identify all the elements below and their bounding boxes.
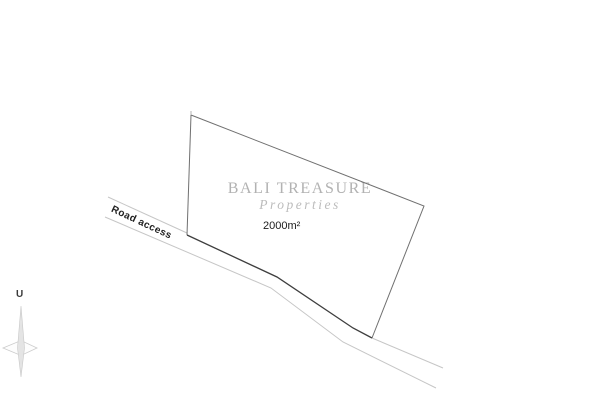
- parcel-left-edge: [187, 115, 191, 235]
- site-plan-canvas: BALI TREASURE Properties 2000m² Road acc…: [0, 0, 600, 400]
- plan-drawing: [0, 0, 600, 400]
- compass-ns-needle: [18, 306, 25, 377]
- compass-star-icon: [3, 306, 37, 377]
- compass-north-label: U: [16, 290, 23, 300]
- parcel-road-edge: [187, 235, 372, 338]
- road-near-line-east: [372, 338, 443, 368]
- parcel-area-label: 2000m²: [263, 220, 300, 232]
- parcel-top-right-edge: [191, 115, 424, 338]
